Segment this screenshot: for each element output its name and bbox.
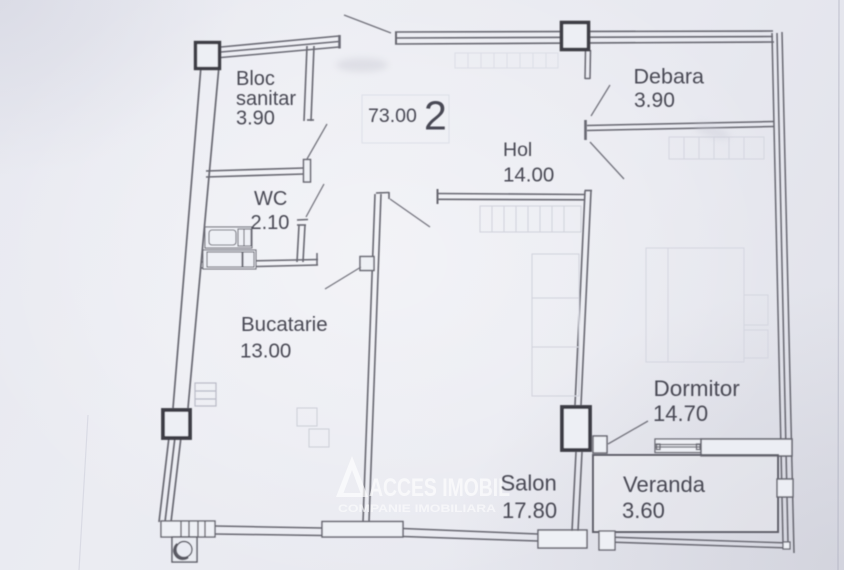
svg-text:Bloc: Bloc <box>236 68 275 90</box>
svg-text:14.00: 14.00 <box>503 164 554 187</box>
svg-text:73.00: 73.00 <box>368 105 417 127</box>
svg-text:Bucatarie: Bucatarie <box>241 313 328 336</box>
svg-text:2: 2 <box>424 93 447 139</box>
svg-text:Salon: Salon <box>501 471 557 496</box>
svg-text:Veranda: Veranda <box>623 472 706 497</box>
svg-text:Dormitor: Dormitor <box>654 376 741 401</box>
svg-text:3.90: 3.90 <box>634 89 675 112</box>
svg-text:3.90: 3.90 <box>236 108 275 130</box>
svg-text:COMPANIE IMOBILIARA: COMPANIE IMOBILIARA <box>338 503 496 515</box>
svg-text:Hol: Hol <box>503 139 532 161</box>
svg-text:13.00: 13.00 <box>240 340 291 363</box>
svg-text:ACCES IMOBIL: ACCES IMOBIL <box>369 474 510 502</box>
svg-text:Debara: Debara <box>634 65 705 89</box>
svg-text:2.10: 2.10 <box>251 212 290 234</box>
svg-text:17.80: 17.80 <box>502 498 557 523</box>
svg-text:WC: WC <box>254 188 287 210</box>
svg-text:14.70: 14.70 <box>653 401 708 426</box>
svg-text:3.60: 3.60 <box>622 498 665 523</box>
